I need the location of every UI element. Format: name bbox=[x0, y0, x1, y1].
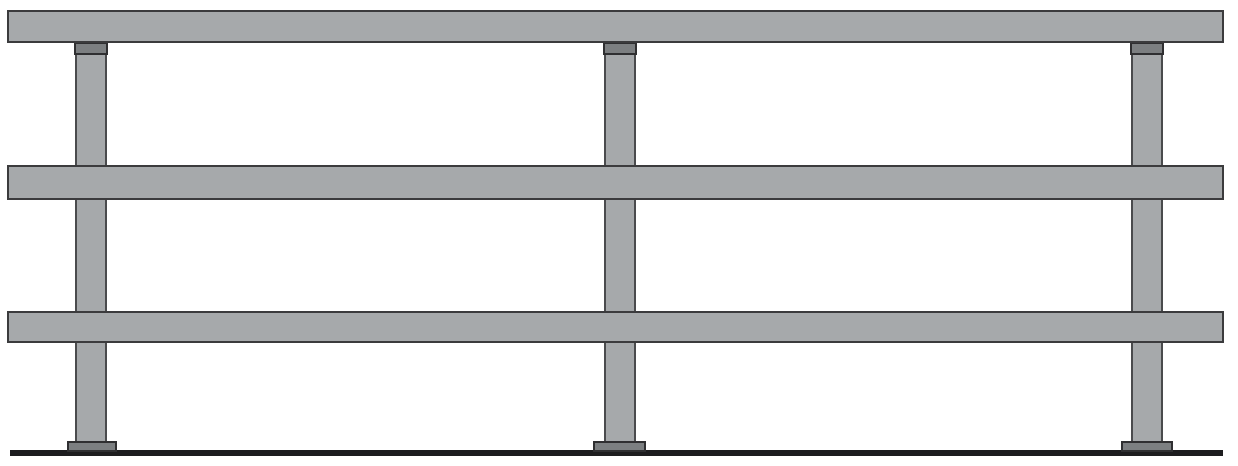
top-rail-bracket-left bbox=[74, 42, 108, 55]
guardrail-elevation-drawing bbox=[0, 0, 1238, 466]
middle-rail bbox=[7, 165, 1224, 200]
base-plate-right bbox=[1121, 441, 1173, 452]
base-plate-left bbox=[67, 441, 117, 452]
top-rail-bracket-middle bbox=[603, 42, 637, 55]
post-right bbox=[1131, 43, 1163, 445]
top-rail bbox=[7, 10, 1224, 43]
post-middle bbox=[604, 43, 636, 445]
bottom-rail bbox=[7, 311, 1224, 343]
post-left bbox=[75, 43, 107, 445]
base-plate-middle bbox=[593, 441, 646, 452]
top-rail-bracket-right bbox=[1130, 42, 1164, 55]
